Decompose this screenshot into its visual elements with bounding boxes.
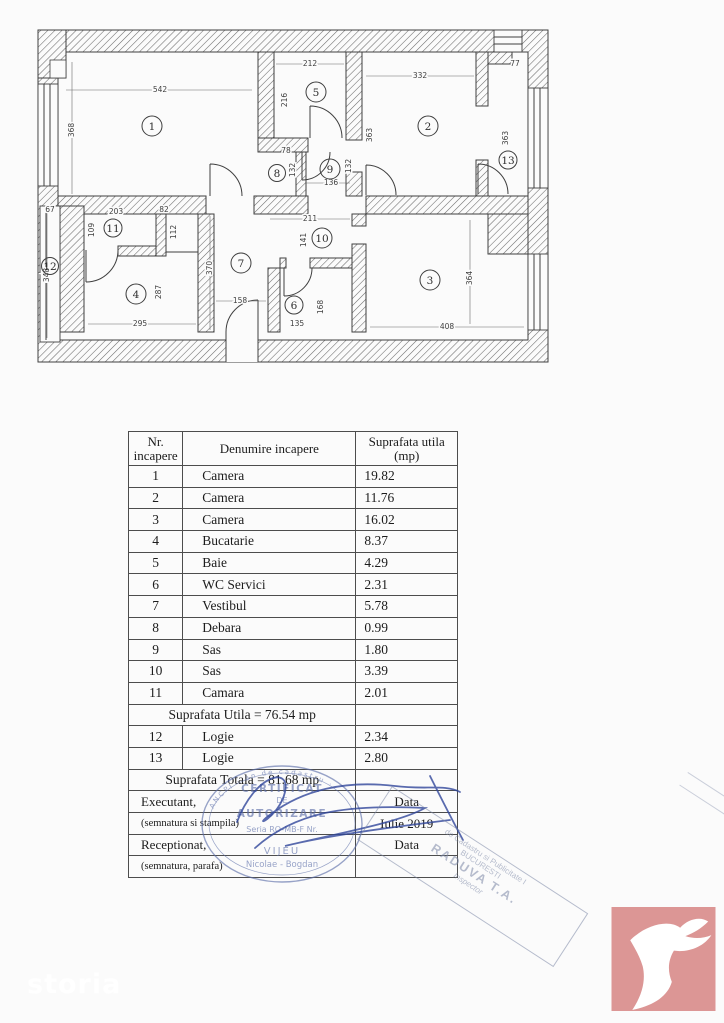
- room-label: 4: [126, 284, 146, 304]
- wall-11-nook: [156, 214, 166, 256]
- svg-text:364: 364: [465, 271, 474, 286]
- scanned-document-page: 542 368 212 216 332 363 77 363 78 132 13…: [0, 0, 724, 1023]
- svg-text:141: 141: [299, 233, 308, 248]
- total-label: Suprafata Totala = 81.68 mp: [129, 769, 356, 791]
- window-room3: [528, 254, 548, 330]
- wall-9-2: [346, 52, 362, 140]
- table-row: 9Sas1.80: [129, 639, 458, 661]
- svg-text:10: 10: [315, 233, 328, 245]
- svg-text:77: 77: [510, 59, 520, 68]
- wall-6-3-top: [352, 214, 366, 226]
- room-label: 1: [142, 116, 162, 136]
- room-label: 2: [418, 116, 438, 136]
- svg-text:203: 203: [109, 207, 124, 216]
- room-label: 5: [306, 82, 326, 102]
- svg-text:7: 7: [238, 258, 245, 270]
- svg-text:3: 3: [427, 275, 434, 287]
- svg-text:12: 12: [43, 261, 56, 273]
- wall-9-2-lower: [346, 172, 362, 196]
- table-row: 1Camera19.82: [129, 466, 458, 488]
- room-label: 7: [231, 253, 251, 273]
- svg-text:295: 295: [133, 319, 148, 328]
- svg-text:158: 158: [233, 296, 248, 305]
- entrance-gap: [226, 332, 258, 362]
- table-row: 12Logie2.34: [129, 726, 458, 748]
- room-label: 8: [269, 165, 286, 182]
- svg-text:9: 9: [327, 164, 334, 176]
- floor-plan: 542 368 212 216 332 363 77 363 78 132 13…: [0, 0, 724, 392]
- receptionat-label: Receptionat,: [129, 834, 356, 856]
- table-row: 11Camara2.01: [129, 682, 458, 704]
- wall-10-6-stub: [280, 258, 286, 268]
- room-label: 11: [104, 219, 122, 237]
- wall-7-6: [268, 268, 280, 332]
- table-header-row: Nr.incapere Denumire incapere Suprafata …: [129, 432, 458, 466]
- wall-1-5: [258, 52, 274, 138]
- svg-text:332: 332: [413, 71, 428, 80]
- svg-text:6: 6: [291, 300, 298, 312]
- svg-text:78: 78: [281, 146, 291, 155]
- svg-text:408: 408: [440, 322, 455, 331]
- dimension-labels: 542 368 212 216 332 363 77 363 78 132 13…: [42, 59, 520, 331]
- header-name: Denumire incapere: [183, 432, 356, 466]
- table-row: 8Debara0.99: [129, 617, 458, 639]
- table-row: 7Vestibul5.78: [129, 596, 458, 618]
- subtotal-label: Suprafata Utila = 76.54 mp: [129, 704, 356, 726]
- executant-sub: (semnatura si stampila): [129, 813, 356, 835]
- svg-text:13: 13: [501, 155, 514, 167]
- table-row: 6WC Servici2.31: [129, 574, 458, 596]
- svg-text:109: 109: [87, 223, 96, 238]
- svg-text:368: 368: [67, 123, 76, 138]
- svg-text:4: 4: [133, 289, 140, 301]
- header-nr: Nr.incapere: [129, 432, 183, 466]
- wall-mid-right: [366, 196, 528, 214]
- svg-text:82: 82: [159, 205, 169, 214]
- svg-text:212: 212: [303, 59, 318, 68]
- storia-logo: [611, 907, 716, 1011]
- svg-text:1: 1: [149, 121, 156, 133]
- table-row: 3Camera16.02: [129, 509, 458, 531]
- svg-text:168: 168: [316, 300, 325, 315]
- executant-label: Executant,: [129, 791, 356, 813]
- window-room1: [38, 84, 58, 186]
- window-top-right: [494, 30, 522, 52]
- room-label: 9: [320, 159, 340, 179]
- svg-text:11: 11: [106, 223, 119, 235]
- svg-text:112: 112: [169, 225, 178, 240]
- wall-12-4: [60, 206, 84, 332]
- svg-text:135: 135: [290, 319, 305, 328]
- table-row: 5Baie4.29: [129, 552, 458, 574]
- room-label: 3: [420, 270, 440, 290]
- svg-text:287: 287: [154, 285, 163, 300]
- header-area: Suprafata utila(mp): [356, 432, 458, 466]
- diagonal-stamp-line: de Cadastru si Publicitate I: [386, 790, 585, 924]
- stamp-edge-fragment: [679, 772, 724, 816]
- svg-text:363: 363: [501, 131, 510, 146]
- table-row: 13Logie2.80: [129, 747, 458, 769]
- svg-text:363: 363: [365, 128, 374, 143]
- table-row: 2Camera11.76: [129, 487, 458, 509]
- wall-mid-center: [254, 196, 308, 214]
- svg-text:542: 542: [153, 85, 168, 94]
- diagonal-stamp-title: Inspector: [368, 817, 567, 951]
- door-gap-11: [86, 245, 116, 257]
- wall-6-3: [352, 244, 366, 332]
- wall-step-notch: [50, 60, 66, 78]
- subtotal-row: Suprafata Utila = 76.54 mp: [129, 704, 458, 726]
- room-label: 13: [499, 151, 517, 169]
- wall-13-step: [488, 52, 512, 64]
- svg-text:5: 5: [313, 87, 320, 99]
- svg-text:370: 370: [205, 261, 214, 276]
- room-label: 6: [285, 296, 303, 314]
- wall-3-notch: [488, 214, 528, 254]
- svg-text:132: 132: [344, 159, 353, 174]
- svg-text:211: 211: [303, 214, 318, 223]
- diagonal-stamp-line: BUCURESTI: [381, 797, 580, 931]
- total-row: Suprafata Totala = 81.68 mp: [129, 769, 458, 791]
- table-row: 10Sas3.39: [129, 661, 458, 683]
- storia-watermark: storia: [27, 969, 121, 1000]
- room-label: 10: [312, 228, 332, 248]
- wall-8-9: [296, 152, 306, 196]
- wall-11-4: [118, 246, 156, 256]
- svg-text:216: 216: [280, 93, 289, 108]
- svg-text:2: 2: [425, 121, 432, 133]
- window-logie13: [528, 88, 548, 188]
- table-row: 4Bucatarie8.37: [129, 531, 458, 553]
- svg-text:8: 8: [274, 168, 281, 180]
- svg-text:132: 132: [288, 163, 297, 178]
- receptionat-sub: (semnatura, parafa): [129, 856, 356, 878]
- wall-2-13-top: [476, 52, 488, 106]
- svg-text:67: 67: [45, 205, 55, 214]
- room-label: 12: [42, 258, 59, 275]
